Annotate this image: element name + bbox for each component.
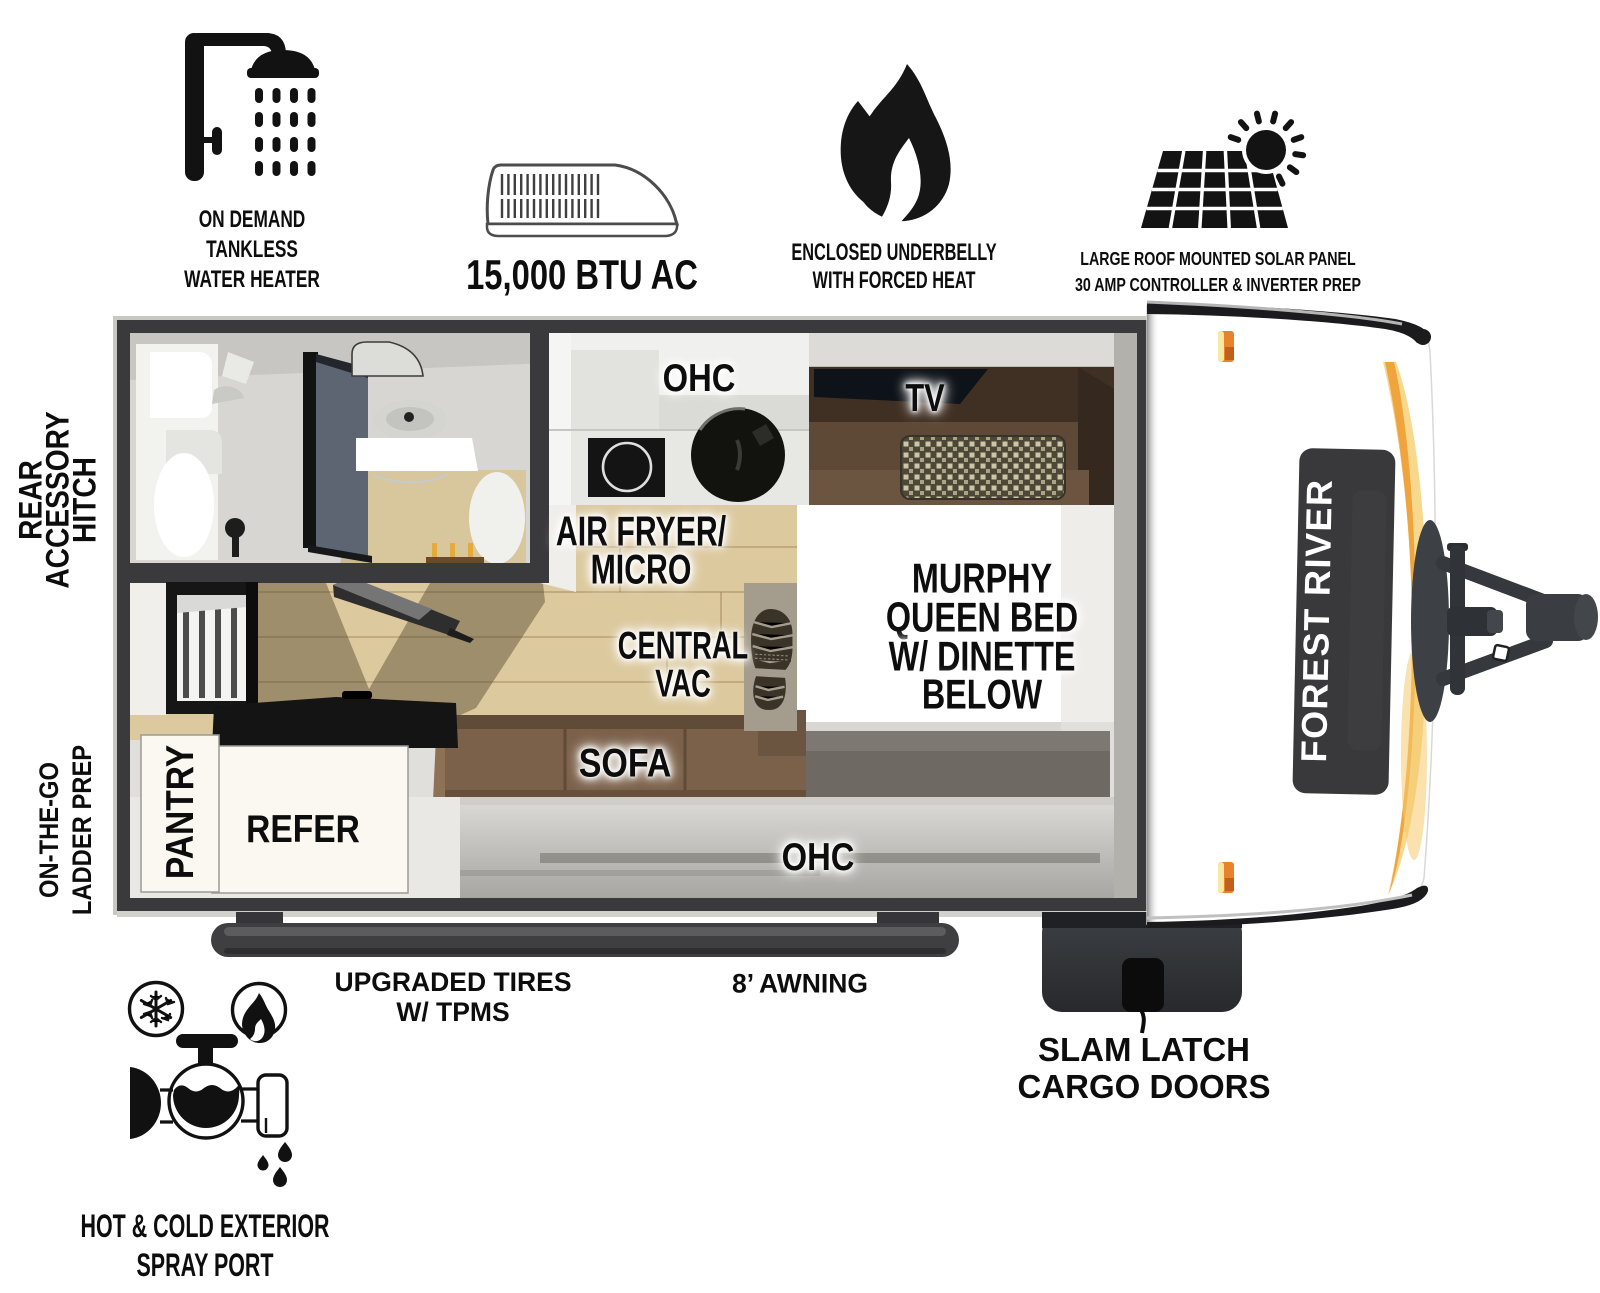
svg-text:FOREST RIVER: FOREST RIVER (1293, 478, 1340, 763)
